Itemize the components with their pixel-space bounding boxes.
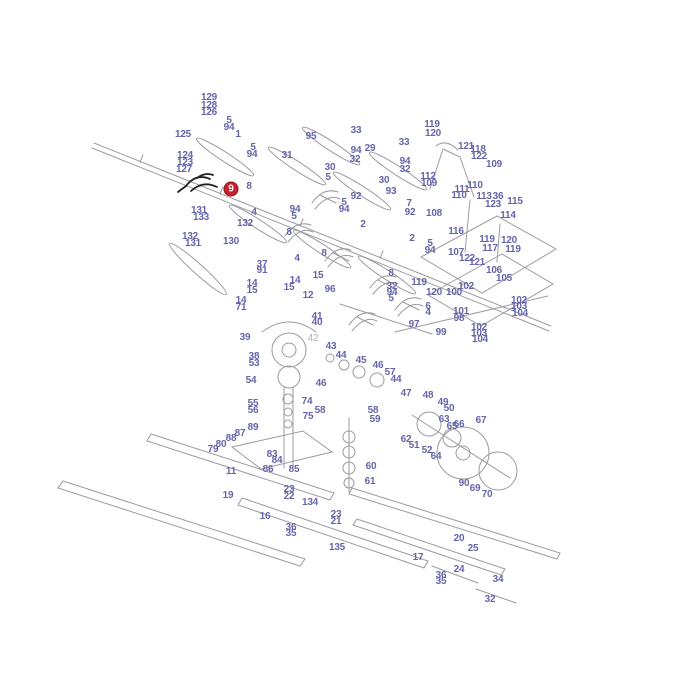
part-label: 58 — [315, 406, 326, 416]
part-label: 110 — [451, 191, 467, 201]
part-label: 47 — [401, 389, 412, 399]
part-label: 123 — [485, 200, 501, 210]
part-label: 5 — [291, 212, 296, 222]
part-label: 95 — [306, 132, 317, 142]
part-label: 1 — [235, 130, 240, 140]
part-label: 66 — [454, 420, 465, 430]
part-label: 21 — [331, 517, 342, 527]
part-label: 75 — [303, 412, 314, 422]
part-label: 33 — [351, 126, 362, 136]
part-label: 40 — [312, 318, 323, 328]
part-label: 54 — [246, 376, 257, 386]
part-label: 4 — [294, 254, 299, 264]
part-label: 8 — [286, 228, 291, 238]
part-label: 86 — [263, 465, 274, 475]
part-label: 120 — [426, 288, 442, 298]
part-label: 32 — [400, 165, 411, 175]
part-label: 74 — [302, 397, 313, 407]
part-label: 104 — [472, 335, 488, 345]
part-label: 91 — [257, 266, 268, 276]
part-label: 108 — [426, 209, 442, 219]
part-label: 34 — [493, 575, 504, 585]
part-label: 25 — [468, 544, 479, 554]
part-label: 119 — [411, 278, 427, 288]
part-label: 130 — [223, 237, 239, 247]
part-label: 15 — [284, 283, 295, 293]
part-label: 127 — [176, 165, 192, 175]
part-label: 12 — [303, 291, 314, 301]
part-label: 92 — [405, 208, 416, 218]
part-label: 17 — [413, 553, 424, 563]
part-label: 2 — [409, 234, 414, 244]
part-labels-layer: 1291281261255941124123127813113341321321… — [0, 0, 700, 700]
part-label: 133 — [193, 213, 209, 223]
part-label: 46 — [373, 361, 384, 371]
part-label: 53 — [249, 359, 260, 369]
part-label: 67 — [476, 416, 487, 426]
part-label: 119 — [505, 245, 521, 255]
part-label: 105 — [496, 274, 512, 284]
part-label: 59 — [370, 415, 381, 425]
part-label: 135 — [329, 543, 345, 553]
part-label: 94 — [425, 246, 436, 256]
part-label: 8 — [246, 182, 251, 192]
part-label: 109 — [486, 160, 502, 170]
part-label: 90 — [459, 479, 470, 489]
part-label: 132 — [237, 219, 253, 229]
part-label: 134 — [302, 498, 318, 508]
part-label: 125 — [175, 130, 191, 140]
part-label: 92 — [351, 192, 362, 202]
part-label: 131 — [185, 239, 201, 249]
part-label: 32 — [350, 155, 361, 165]
part-label: 5 — [388, 294, 393, 304]
part-label: 85 — [289, 465, 300, 475]
part-label: 8 — [388, 269, 393, 279]
part-label: 30 — [379, 176, 390, 186]
part-label: 15 — [247, 286, 258, 296]
part-label: 93 — [386, 187, 397, 197]
part-label: 97 — [409, 320, 420, 330]
part-label: 98 — [454, 314, 465, 324]
part-label: 71 — [236, 303, 247, 313]
part-label: 89 — [248, 423, 259, 433]
part-label: 24 — [454, 565, 465, 575]
part-label: 56 — [248, 406, 259, 416]
part-label: 121 — [469, 258, 485, 268]
part-label: 102 — [458, 282, 474, 292]
part-label: 16 — [260, 512, 271, 522]
part-label: 32 — [485, 595, 496, 605]
part-label: 50 — [444, 404, 455, 414]
part-label: 33 — [399, 138, 410, 148]
part-label: 115 — [507, 197, 523, 207]
part-label: 69 — [470, 484, 481, 494]
highlighted-part-label[interactable]: 9 — [224, 182, 239, 197]
part-label: 35 — [436, 577, 447, 587]
part-label: 51 — [409, 441, 420, 451]
part-label: 5 — [325, 173, 330, 183]
part-label: 126 — [201, 108, 217, 118]
part-label: 61 — [365, 477, 376, 487]
part-label: 96 — [325, 285, 336, 295]
part-label: 2 — [360, 220, 365, 230]
part-label: 94 — [339, 205, 350, 215]
part-label: 94 — [224, 123, 235, 133]
part-label: 15 — [313, 271, 324, 281]
part-label: 99 — [436, 328, 447, 338]
part-label: 44 — [391, 375, 402, 385]
part-label: 64 — [431, 452, 442, 462]
part-label: 110 — [467, 181, 483, 191]
part-label: 31 — [282, 151, 293, 161]
part-label: 60 — [366, 462, 377, 472]
part-label: 109 — [421, 179, 437, 189]
part-label: 48 — [423, 391, 434, 401]
part-label: 45 — [356, 356, 367, 366]
part-label: 94 — [247, 150, 258, 160]
part-label: 4 — [251, 208, 256, 218]
part-label: 19 — [223, 491, 234, 501]
part-label: 46 — [316, 379, 327, 389]
part-label: 116 — [448, 227, 464, 237]
part-label: 114 — [500, 211, 516, 221]
part-label: 122 — [471, 152, 487, 162]
part-label: 11 — [226, 467, 236, 477]
parts-diagram: 1291281261255941124123127813113341321321… — [0, 0, 700, 700]
part-label: 44 — [336, 351, 347, 361]
part-label: 39 — [240, 333, 251, 343]
part-label: 35 — [286, 529, 297, 539]
part-label: 104 — [512, 309, 528, 319]
part-label: 87 — [235, 429, 246, 439]
part-label: 120 — [425, 129, 441, 139]
part-label: 117 — [482, 244, 498, 254]
part-label: 8 — [321, 249, 326, 259]
part-label: 42 — [308, 334, 319, 344]
part-label: 22 — [284, 492, 295, 502]
part-label: 29 — [365, 144, 376, 154]
part-label: 20 — [454, 534, 465, 544]
part-label: 70 — [482, 490, 493, 500]
part-label: 4 — [425, 308, 430, 318]
